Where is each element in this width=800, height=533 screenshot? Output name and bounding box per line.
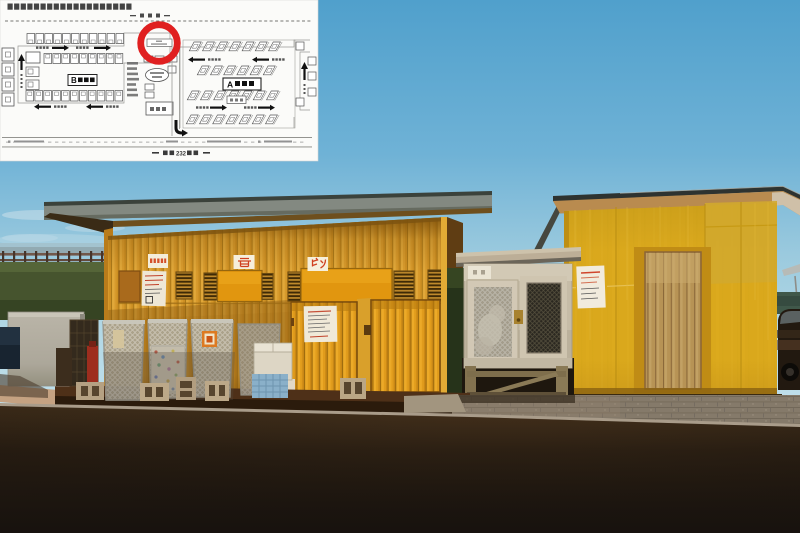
svg-text:B: B [71, 76, 77, 85]
svg-text:232: 232 [176, 152, 187, 158]
svg-text:A: A [227, 80, 233, 90]
